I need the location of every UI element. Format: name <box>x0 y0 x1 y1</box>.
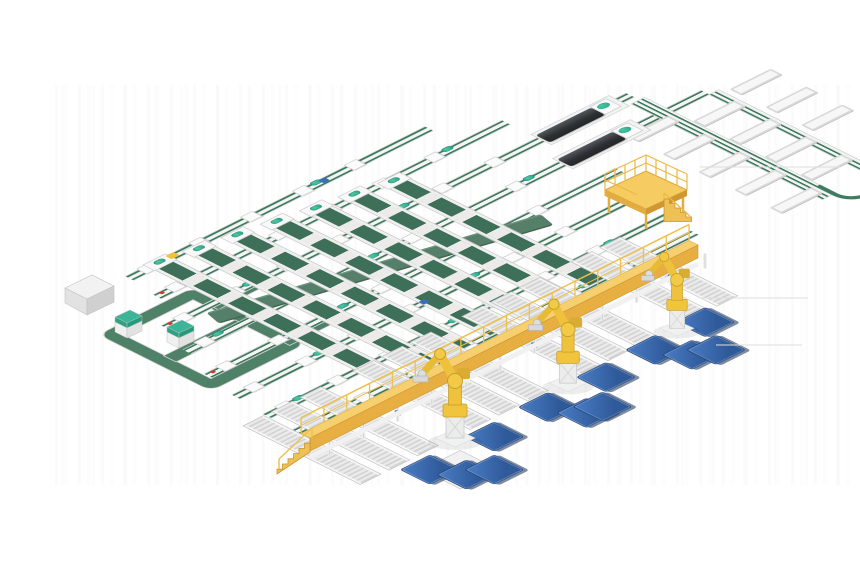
elevated-structures-overlay <box>0 0 860 580</box>
robot-gripper <box>529 325 543 331</box>
robot-base <box>667 299 687 310</box>
walkway-deck-top <box>301 241 698 439</box>
teal-top-cabinet <box>167 320 194 348</box>
robot-shoulder-joint <box>671 273 684 286</box>
walkway-truss <box>310 264 698 457</box>
robot-base <box>557 351 580 363</box>
robot-gripper <box>641 276 654 281</box>
walkway-mid-rail <box>301 233 689 426</box>
robot-base <box>443 404 467 417</box>
teal-top-cabinet <box>115 310 142 338</box>
robot-elbow-joint <box>549 299 559 309</box>
control-cabinet <box>65 275 114 315</box>
factory-render-scene <box>0 0 860 580</box>
elevated-walkway <box>277 225 705 475</box>
robot-elbow-joint <box>435 349 446 360</box>
walkway-deck-front <box>310 245 698 451</box>
floor-marking-lines <box>700 167 840 345</box>
maintenance-platform <box>605 155 692 229</box>
walkway-top-rail <box>301 225 689 418</box>
robot-shoulder-joint <box>561 322 575 336</box>
robot-elbow-joint <box>660 252 669 261</box>
robot-shoulder-joint <box>448 374 463 389</box>
robot-gripper <box>413 376 428 382</box>
